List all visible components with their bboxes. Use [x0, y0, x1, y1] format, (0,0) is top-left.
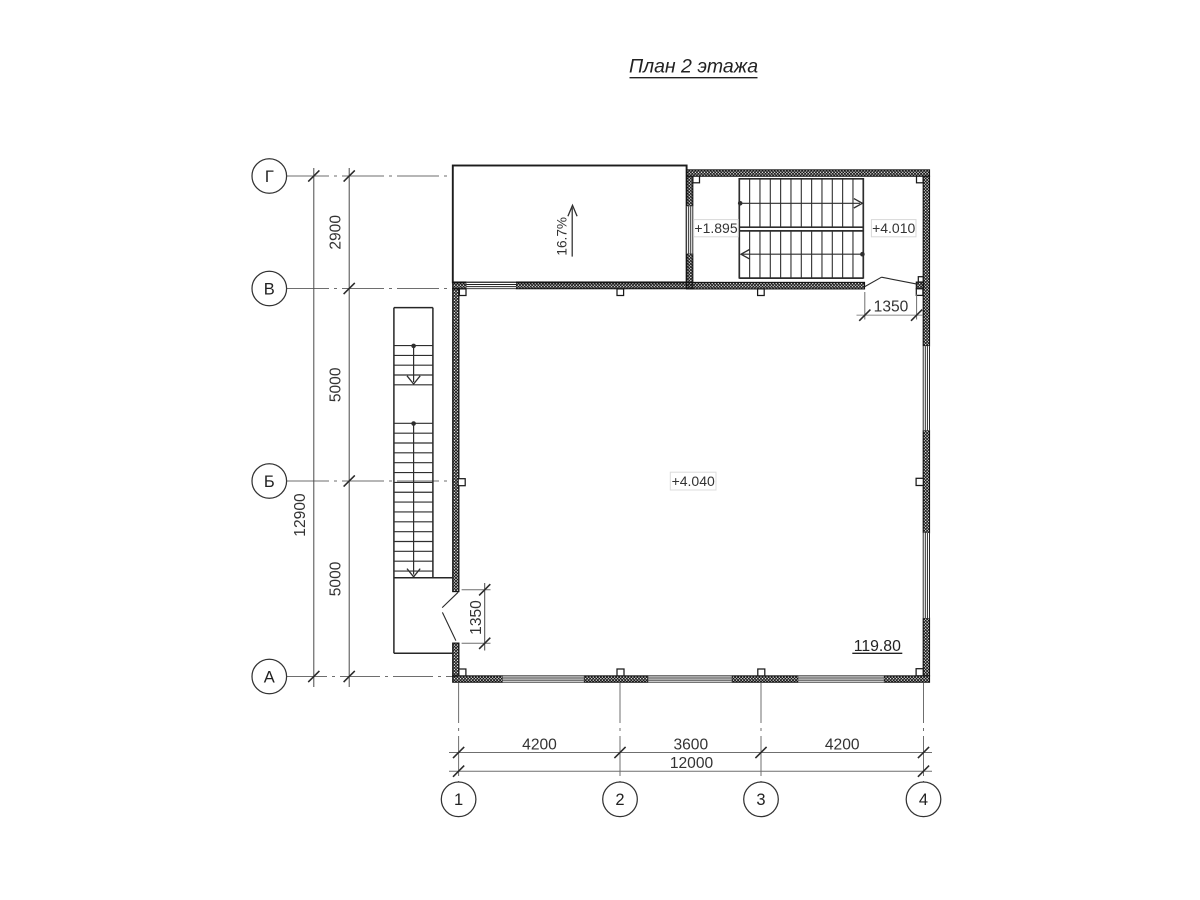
- svg-text:5000: 5000: [328, 367, 345, 402]
- svg-text:1350: 1350: [874, 299, 909, 316]
- svg-text:16.7%: 16.7%: [555, 217, 570, 256]
- svg-text:1350: 1350: [468, 600, 485, 635]
- svg-text:2: 2: [615, 791, 624, 809]
- svg-text:+4.010: +4.010: [872, 220, 915, 236]
- svg-text:1: 1: [454, 791, 463, 809]
- svg-text:4200: 4200: [825, 736, 860, 753]
- svg-text:2900: 2900: [328, 215, 345, 250]
- svg-text:+4.040: +4.040: [672, 473, 715, 489]
- svg-text:4200: 4200: [522, 736, 557, 753]
- svg-text:12900: 12900: [292, 493, 309, 537]
- svg-text:+1.895: +1.895: [694, 220, 737, 236]
- svg-text:3600: 3600: [673, 736, 708, 753]
- svg-text:12000: 12000: [670, 755, 714, 772]
- svg-text:4: 4: [919, 791, 928, 809]
- svg-text:План 2 этажа: План 2 этажа: [629, 56, 758, 78]
- svg-text:5000: 5000: [328, 561, 345, 596]
- svg-text:В: В: [264, 280, 275, 298]
- svg-text:Б: Б: [264, 473, 275, 491]
- svg-text:А: А: [264, 668, 275, 686]
- svg-text:3: 3: [756, 791, 765, 809]
- svg-text:Г: Г: [265, 168, 274, 186]
- svg-text:119.80: 119.80: [854, 638, 901, 655]
